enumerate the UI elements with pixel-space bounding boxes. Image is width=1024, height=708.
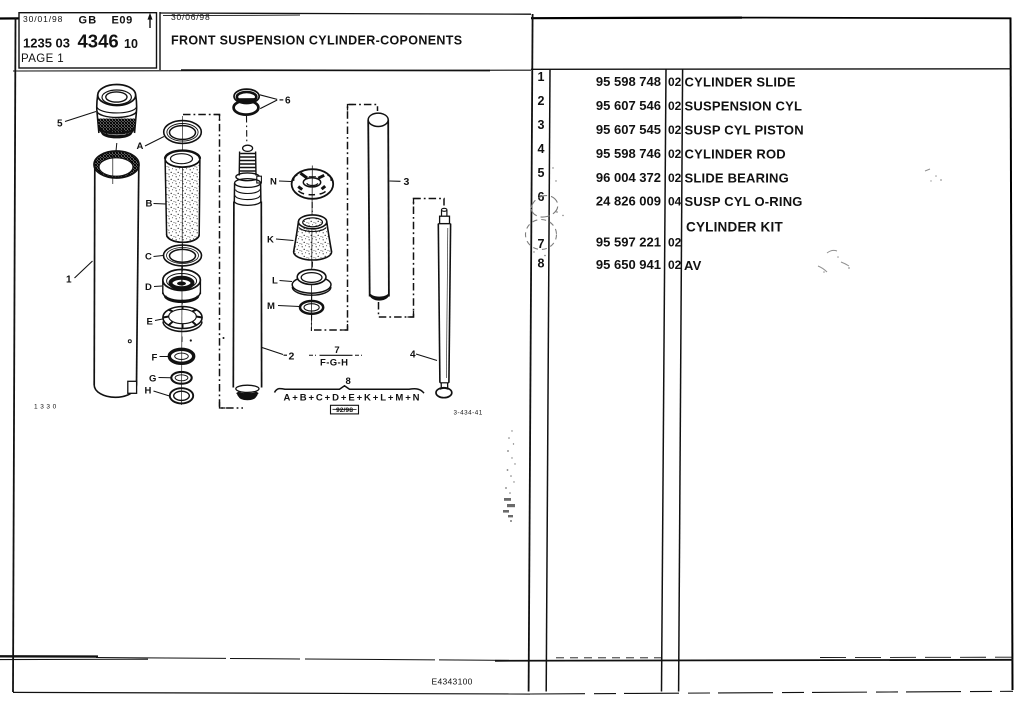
svg-text:N: N (270, 177, 277, 188)
svg-text:02: 02 (668, 171, 682, 185)
svg-text:CYLINDER SLIDE: CYLINDER SLIDE (685, 75, 796, 90)
svg-text:02: 02 (668, 99, 682, 113)
svg-text:24 826 009: 24 826 009 (596, 194, 661, 209)
svg-text:A+B+C+D+E+K+L+M+N: A+B+C+D+E+K+L+M+N (284, 392, 422, 403)
svg-text:1235 03: 1235 03 (23, 36, 70, 51)
svg-text:30/01/98: 30/01/98 (23, 14, 63, 24)
svg-text:FRONT SUSPENSION CYLINDER-COPO: FRONT SUSPENSION CYLINDER-COPONENTS (171, 34, 462, 48)
svg-text:SUSP CYL PISTON: SUSP CYL PISTON (685, 123, 804, 138)
svg-text:SUSPENSION CYL: SUSPENSION CYL (685, 99, 803, 114)
svg-text:G: G (149, 374, 156, 385)
svg-text:02: 02 (668, 147, 682, 161)
svg-text:95 607 545: 95 607 545 (596, 122, 661, 137)
svg-text:95 607 546: 95 607 546 (596, 98, 661, 113)
svg-text:F-G-H: F-G-H (320, 358, 348, 369)
svg-text:04: 04 (668, 195, 682, 209)
svg-text:AV: AV (684, 258, 702, 273)
svg-text:GB: GB (79, 15, 98, 27)
svg-text:95 650 941: 95 650 941 (596, 257, 661, 272)
svg-text:95 598 748: 95 598 748 (596, 74, 661, 89)
svg-text:3-434-41: 3-434-41 (454, 410, 483, 417)
svg-text:3: 3 (404, 176, 410, 188)
svg-text:CYLINDER ROD: CYLINDER ROD (685, 147, 786, 162)
svg-text:95 597 221: 95 597 221 (596, 235, 661, 250)
svg-text:1: 1 (538, 70, 545, 84)
svg-text:02: 02 (668, 123, 682, 137)
svg-text:8: 8 (346, 376, 351, 387)
svg-text:PAGE 1: PAGE 1 (21, 53, 64, 65)
svg-text:10: 10 (124, 37, 138, 51)
svg-text:C: C (145, 252, 152, 263)
svg-text:F: F (152, 353, 158, 364)
svg-text:2: 2 (538, 94, 545, 108)
svg-text:95 598 746: 95 598 746 (596, 146, 661, 161)
svg-text:96 004 372: 96 004 372 (596, 170, 661, 185)
svg-text:3: 3 (538, 118, 545, 132)
svg-text:4346: 4346 (78, 31, 119, 52)
svg-text:CYLINDER KIT: CYLINDER KIT (686, 220, 783, 235)
svg-text:SLIDE BEARING: SLIDE BEARING (685, 171, 789, 186)
svg-text:6: 6 (285, 96, 291, 107)
svg-text:4: 4 (410, 350, 416, 361)
svg-text:M: M (267, 301, 275, 312)
svg-text:E: E (147, 317, 153, 328)
svg-text:5: 5 (538, 166, 545, 180)
svg-text:E4343100: E4343100 (432, 677, 473, 687)
svg-text:1: 1 (66, 275, 72, 286)
svg-text:1330: 1330 (34, 404, 59, 411)
svg-text:8: 8 (538, 257, 545, 271)
svg-text:30/06/98: 30/06/98 (171, 12, 211, 22)
svg-text:A: A (137, 141, 144, 152)
svg-text:D: D (145, 282, 152, 293)
svg-text:02: 02 (668, 75, 682, 89)
svg-text:02: 02 (668, 258, 682, 272)
svg-text:4: 4 (538, 142, 545, 156)
svg-text:H: H (145, 386, 152, 397)
svg-text:B: B (146, 199, 153, 210)
svg-text:SUSP CYL O-RING: SUSP CYL O-RING (685, 194, 803, 209)
svg-text:2: 2 (289, 351, 295, 363)
svg-text:7: 7 (334, 345, 339, 356)
svg-text:5: 5 (57, 119, 63, 130)
svg-text:92/98: 92/98 (336, 407, 353, 414)
svg-text:L: L (272, 276, 278, 287)
svg-text:02: 02 (668, 236, 682, 250)
svg-text:K: K (267, 235, 274, 246)
svg-text:E09: E09 (112, 15, 133, 27)
